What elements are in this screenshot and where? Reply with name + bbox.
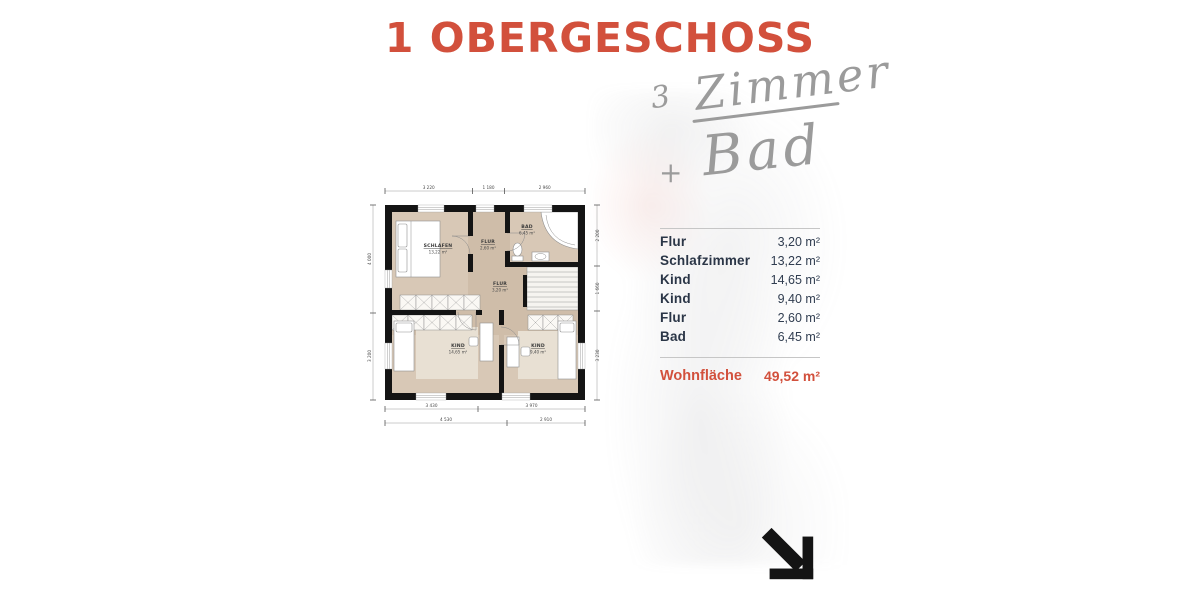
row-value: 2,60 m² [778, 311, 820, 325]
table-row: Schlafzimmer 13,22 m² [660, 253, 820, 272]
table-rows: Flur 3,20 m² Schlafzimmer 13,22 m² Kind … [660, 228, 820, 348]
dim-left-2: 3 200 [367, 350, 372, 362]
wardrobe-row-1 [400, 295, 480, 310]
room-area-kind-rechts: 9,40 m² [530, 350, 546, 355]
handwritten-plus: + [659, 156, 682, 189]
dim-left-1: 4 000 [367, 253, 372, 265]
page-title: 1 OBERGESCHOSS [0, 14, 1200, 62]
toilet-icon [512, 243, 523, 261]
dim-top-1: 3 220 [423, 185, 435, 190]
room-area-schlafen: 13,22 m² [429, 250, 448, 255]
total-row: Wohnfläche 49,52 m² [660, 357, 820, 384]
room-area-flur-klein: 2,60 m² [480, 246, 496, 251]
row-value: 14,65 m² [771, 273, 820, 287]
room-area-flur: 3,20 m² [492, 288, 508, 293]
room-area-kind-links: 14,65 m² [449, 350, 468, 355]
dim-bottom-outer-2: 2 910 [540, 417, 552, 422]
dim-bottom-inner-1: 3 430 [426, 403, 438, 408]
total-value: 49,52 m² [764, 368, 820, 384]
room-name-flur-klein: FLUR [481, 239, 495, 245]
table-row: Flur 2,60 m² [660, 310, 820, 329]
room-name-kind-rechts: KIND [531, 343, 545, 349]
dim-right-2: 1 660 [595, 282, 600, 294]
dim-top-2: 1 180 [483, 185, 495, 190]
row-value: 9,40 m² [778, 292, 820, 306]
row-label: Kind [660, 291, 691, 306]
row-value: 3,20 m² [778, 235, 820, 249]
row-value: 13,22 m² [771, 254, 820, 268]
room-name-schlafen: SCHLAFEN [424, 243, 453, 249]
dim-right-1: 2 200 [595, 229, 600, 241]
handwritten-bad: Bad [699, 112, 825, 188]
table-row: Kind 14,65 m² [660, 272, 820, 291]
bed-kind-right-icon [558, 321, 576, 379]
table-row: Bad 6,45 m² [660, 329, 820, 348]
row-label: Bad [660, 329, 686, 344]
row-value: 6,45 m² [778, 330, 820, 344]
handwritten-room-count: 3 [649, 79, 673, 116]
row-label: Schlafzimmer [660, 253, 750, 268]
row-label: Kind [660, 272, 691, 287]
table-row: Kind 9,40 m² [660, 291, 820, 310]
room-name-kind-links: KIND [451, 343, 465, 349]
bed-kind-left-icon [394, 321, 414, 371]
stairs-icon [527, 267, 578, 310]
dim-bottom-inner-2: 3 970 [526, 403, 538, 408]
arrow-down-right-icon [757, 523, 819, 585]
room-name-flur: FLUR [493, 281, 507, 287]
room-area-table: Flur 3,20 m² Schlafzimmer 13,22 m² Kind … [660, 228, 820, 384]
room-name-bad: BAD [521, 224, 532, 230]
dim-right-3: 3 230 [595, 349, 600, 361]
floor-plan: SCHLAFEN 13,22 m² FLUR 2,60 m² BAD 6,45 … [360, 175, 610, 445]
row-label: Flur [660, 234, 686, 249]
table-row: Flur 3,20 m² [660, 234, 820, 253]
room-area-bad: 6,45 m² [519, 231, 535, 236]
dim-top-3: 2 960 [539, 185, 551, 190]
sink-icon [532, 252, 549, 261]
row-label: Flur [660, 310, 686, 325]
dim-bottom-outer-1: 4 530 [440, 417, 452, 422]
total-label: Wohnfläche [660, 368, 742, 384]
floorplan-poster: 1 OBERGESCHOSS 3 Zimmer + Bad [0, 0, 1200, 600]
